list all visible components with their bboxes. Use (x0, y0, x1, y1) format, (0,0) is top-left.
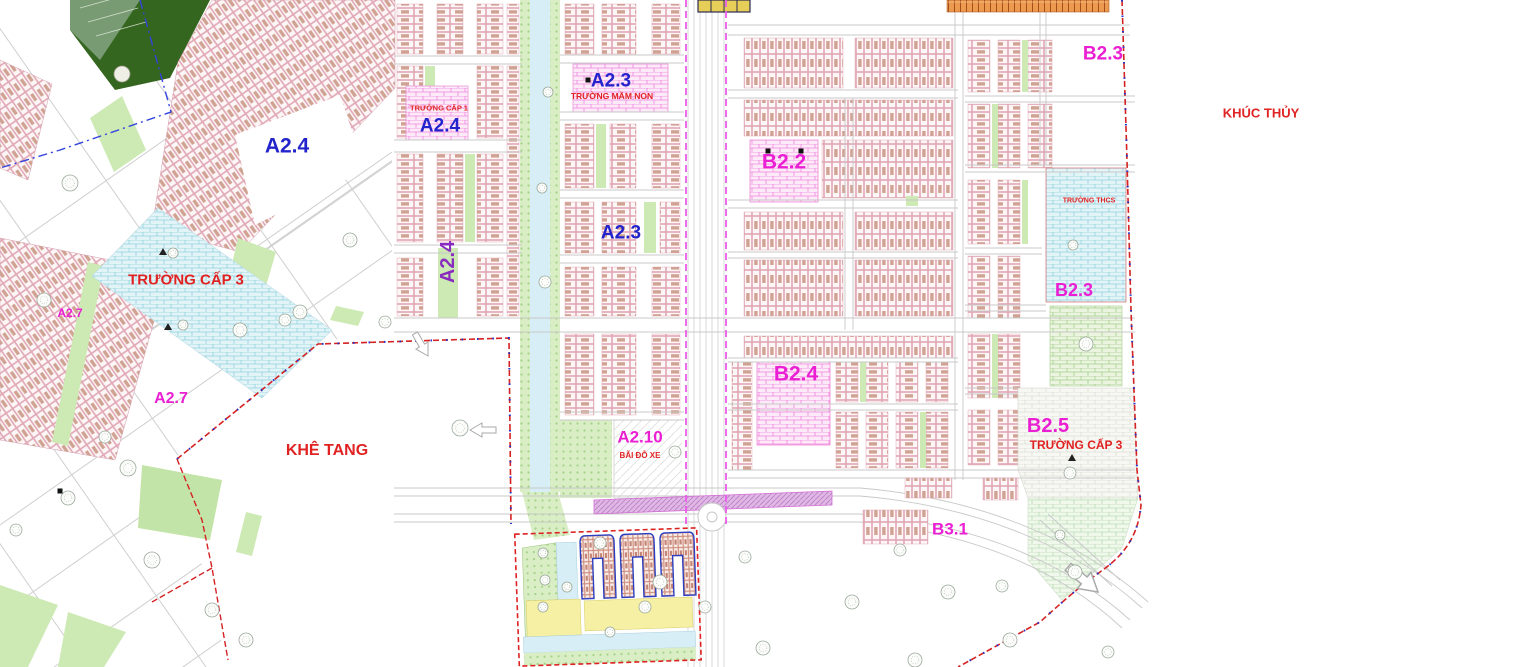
tree-icon (99, 431, 111, 443)
school-mamnon-area (573, 64, 668, 112)
tree-icon (1068, 240, 1078, 250)
tree-icon (653, 575, 667, 589)
square-marker-icon (58, 489, 63, 494)
tree-icon (894, 544, 906, 556)
tree-icon (61, 491, 75, 505)
tree-icon (699, 601, 711, 613)
tree-icon (343, 233, 357, 247)
a210-green (560, 420, 612, 498)
tree-icon (669, 446, 681, 458)
tree-icon (178, 320, 188, 330)
tree-icon (62, 175, 78, 191)
tree-icon (1064, 467, 1076, 479)
rowhouse-estates (0, 0, 395, 460)
tree-icon (379, 316, 391, 328)
school-cap1-area (406, 86, 468, 140)
zone-a24-strip (397, 4, 519, 318)
school-b25-area (1018, 388, 1138, 498)
zone-a23 (560, 4, 686, 498)
zone-b31 (863, 478, 1018, 544)
tree-icon (639, 601, 651, 613)
tree-icon (537, 183, 547, 193)
tree-icon (996, 580, 1008, 592)
tree-icon (941, 585, 955, 599)
tree-icon (1068, 565, 1082, 579)
tree-icon (239, 633, 253, 647)
orange-rowhouses (947, 0, 1109, 12)
tree-icon (538, 548, 548, 558)
square-marker-icon (766, 149, 771, 154)
tree-icon (739, 551, 751, 563)
tree-icon (1102, 646, 1114, 658)
parking-lot-area (614, 420, 686, 498)
tree-icon (538, 602, 548, 612)
tree-icon (120, 460, 136, 476)
zone-b23-east (968, 40, 1138, 600)
school-thcs-area (1046, 168, 1126, 302)
tree-icon (1055, 530, 1065, 540)
tree-icon (168, 248, 178, 258)
tree-icon (233, 323, 247, 337)
tree-icon (756, 641, 770, 655)
top-buildings (698, 0, 1109, 12)
tree-icon (10, 524, 22, 536)
tree-icon (452, 420, 468, 436)
block-b24-core (757, 362, 830, 445)
block-b22-core (750, 140, 818, 202)
zoning-map-canvas: A2.4TRƯỜNG CẤP 1A2.4A2.4A2.3TRƯỜNG MẦM N… (0, 0, 1530, 667)
square-marker-icon (799, 149, 804, 154)
tree-icon (543, 87, 553, 97)
tree-icon (562, 582, 572, 592)
tree-icon (144, 552, 160, 568)
square-marker-icon (586, 78, 591, 83)
tree-icon (594, 537, 606, 549)
roundabout (698, 503, 726, 531)
tree-icon (293, 305, 307, 319)
tree-icon (205, 603, 219, 617)
tree-icon (1003, 633, 1017, 647)
tree-icon (1079, 337, 1093, 351)
tree-icon (279, 314, 291, 326)
tree-icon (605, 627, 615, 637)
tree-icon (908, 653, 922, 667)
tree-icon (539, 276, 551, 288)
zone-b24 (732, 336, 953, 470)
zone-b22 (744, 38, 953, 316)
zoning-map-drawing (0, 0, 1530, 667)
tree-icon (37, 293, 51, 307)
tree-icon (845, 595, 859, 609)
tree-icon (540, 575, 550, 585)
